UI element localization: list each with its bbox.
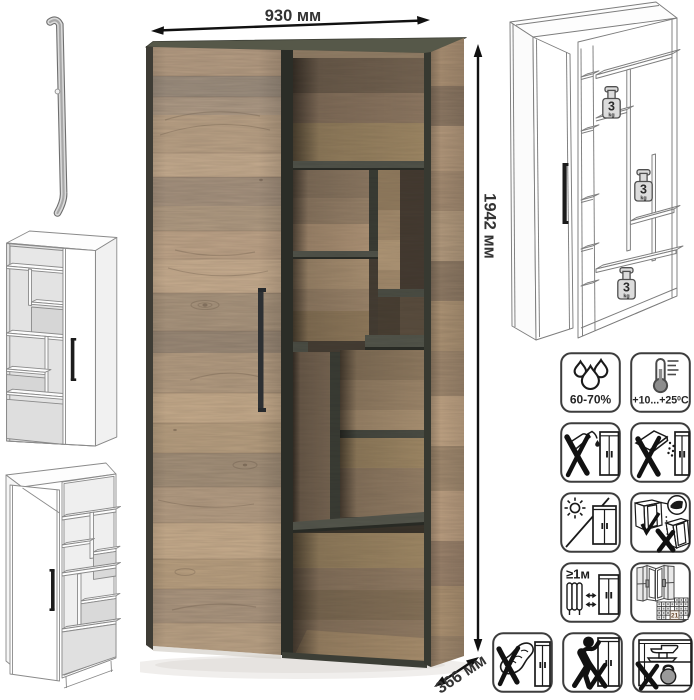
svg-text:930 мм: 930 мм xyxy=(265,7,322,25)
svg-text:≥1м: ≥1м xyxy=(566,567,590,582)
svg-text:21: 21 xyxy=(671,613,679,620)
svg-text:+10...+250C: +10...+250C xyxy=(632,395,689,407)
svg-text:1942 мм: 1942 мм xyxy=(481,193,499,259)
svg-text:60-70%: 60-70% xyxy=(569,393,611,407)
svg-text:366 мм: 366 мм xyxy=(433,651,490,697)
